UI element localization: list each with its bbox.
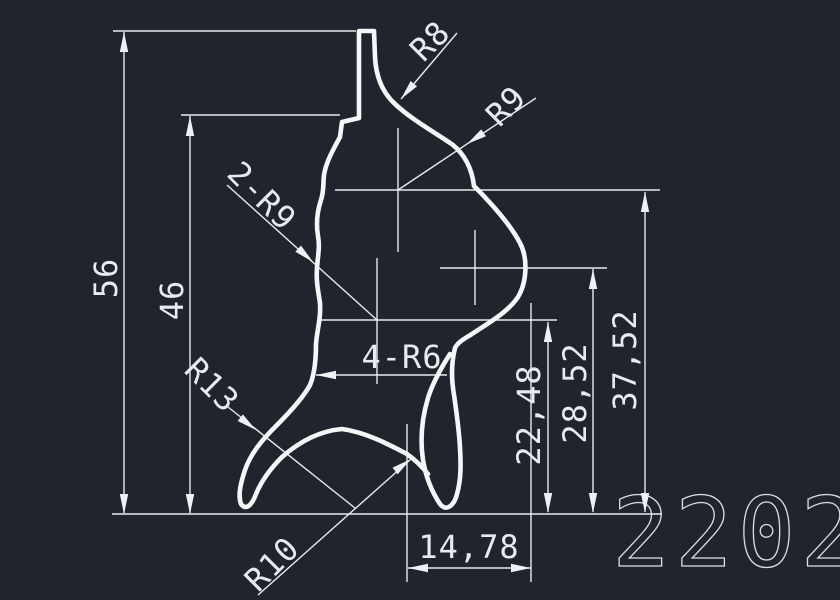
arrow-22-48-bottom xyxy=(544,493,552,513)
cad-drawing-stage: 2202 xyxy=(0,0,840,600)
arrow-37-52-top xyxy=(641,192,649,212)
arrow-r13 xyxy=(238,414,259,433)
arrow-46-top xyxy=(186,116,194,136)
label-height-22-48: 22,48 xyxy=(510,364,548,465)
arrow-4-r6 xyxy=(316,371,336,379)
arrow-46-bottom xyxy=(186,494,194,514)
label-r8: R8 xyxy=(402,13,458,69)
dimension-labels: 56 46 22,48 28,52 37,52 14,78 R8 R9 2-R9… xyxy=(87,13,644,599)
arrow-r9 xyxy=(465,129,486,147)
label-height-37-52: 37,52 xyxy=(606,309,644,410)
label-height-56: 56 xyxy=(87,258,125,299)
label-r13: R13 xyxy=(177,350,247,420)
arrow-28-52-bottom xyxy=(589,493,597,513)
arrow-56-bottom xyxy=(120,494,128,514)
dimension-arrowheads xyxy=(120,32,649,572)
arrow-22-48-top xyxy=(544,322,552,342)
label-r9: R9 xyxy=(478,78,534,134)
label-4-r6: 4-R6 xyxy=(361,338,442,376)
arrow-56-top xyxy=(120,32,128,52)
profile-arch-left-side xyxy=(240,31,428,507)
label-height-28-52: 28,52 xyxy=(556,342,594,443)
dimension-lines xyxy=(112,31,662,582)
label-height-46: 46 xyxy=(153,280,191,321)
label-2-r9: 2-R9 xyxy=(220,154,304,238)
cad-drawing-canvas[interactable]: 2202 xyxy=(0,0,840,600)
arrow-28-52-top xyxy=(589,269,597,289)
label-width-14-78: 14,78 xyxy=(418,528,519,566)
label-r10: R10 xyxy=(237,529,307,599)
